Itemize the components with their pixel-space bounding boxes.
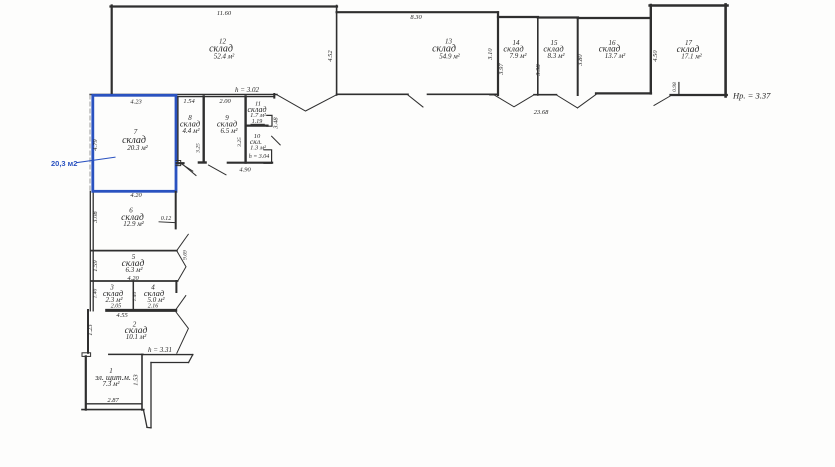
svg-text:8.30: 8.30: [410, 14, 422, 21]
svg-text:4.90: 4.90: [239, 167, 251, 174]
svg-text:7.9 м²: 7.9 м²: [509, 52, 527, 60]
svg-text:1.7 м²: 1.7 м²: [250, 112, 267, 119]
svg-text:1.23: 1.23: [87, 324, 94, 336]
svg-text:1.40: 1.40: [131, 291, 138, 301]
svg-text:12.9 м²: 12.9 м²: [123, 220, 144, 228]
svg-text:4.4 м²: 4.4 м²: [182, 127, 200, 135]
svg-text:h = 3.31: h = 3.31: [148, 346, 172, 354]
svg-text:6.5 м²: 6.5 м²: [220, 127, 238, 135]
svg-text:3.98: 3.98: [535, 64, 542, 77]
svg-text:3.80: 3.80: [577, 54, 584, 67]
svg-text:3.10: 3.10: [487, 48, 494, 61]
svg-text:1.3 м²: 1.3 м²: [250, 145, 267, 152]
svg-text:11.60: 11.60: [217, 10, 232, 17]
svg-text:1.53: 1.53: [133, 374, 140, 386]
svg-text:54.9 м²: 54.9 м²: [439, 53, 460, 61]
svg-text:h = 3.02: h = 3.02: [235, 86, 259, 94]
svg-text:3.25: 3.25: [237, 137, 243, 148]
svg-text:4.50: 4.50: [652, 50, 659, 62]
svg-text:h = 3.04: h = 3.04: [249, 153, 270, 160]
svg-text:Нр. = 3.37: Нр. = 3.37: [732, 91, 771, 101]
svg-text:1.54: 1.54: [183, 98, 195, 105]
svg-text:13.7 м²: 13.7 м²: [605, 52, 626, 60]
svg-text:4.20: 4.20: [130, 192, 142, 199]
svg-text:20.3 м²: 20.3 м²: [127, 144, 148, 152]
svg-text:7.3 м²: 7.3 м²: [102, 380, 120, 388]
svg-text:2.16: 2.16: [148, 304, 159, 310]
svg-text:10.1 м²: 10.1 м²: [126, 333, 147, 341]
svg-text:2.00: 2.00: [219, 98, 231, 105]
svg-text:3.25: 3.25: [196, 143, 202, 154]
svg-text:20,3 м2: 20,3 м2: [51, 159, 77, 168]
svg-text:17.1 м²: 17.1 м²: [681, 53, 702, 61]
svg-text:2.3 м²: 2.3 м²: [105, 296, 123, 304]
svg-text:3.97: 3.97: [498, 63, 505, 76]
svg-text:6.3 м²: 6.3 м²: [125, 266, 143, 274]
svg-text:3.48: 3.48: [273, 117, 280, 130]
svg-text:52.4 м²: 52.4 м²: [214, 53, 235, 61]
svg-text:2.87: 2.87: [107, 397, 119, 404]
svg-text:4.79: 4.79: [92, 139, 99, 151]
svg-text:23.68: 23.68: [534, 109, 549, 116]
svg-text:1.59: 1.59: [92, 260, 99, 272]
svg-text:4.23: 4.23: [130, 99, 142, 106]
svg-text:8.3 м²: 8.3 м²: [547, 52, 565, 60]
svg-text:0.12: 0.12: [161, 216, 172, 222]
svg-text:9.69: 9.69: [183, 250, 189, 260]
svg-text:3.08: 3.08: [92, 211, 99, 224]
svg-text:0.98: 0.98: [672, 82, 678, 92]
svg-text:4.55: 4.55: [116, 312, 128, 319]
svg-text:4.52: 4.52: [327, 50, 334, 62]
svg-text:1.40: 1.40: [92, 288, 99, 298]
svg-text:5.0 м²: 5.0 м²: [147, 296, 165, 304]
svg-text:2.05: 2.05: [111, 304, 122, 310]
